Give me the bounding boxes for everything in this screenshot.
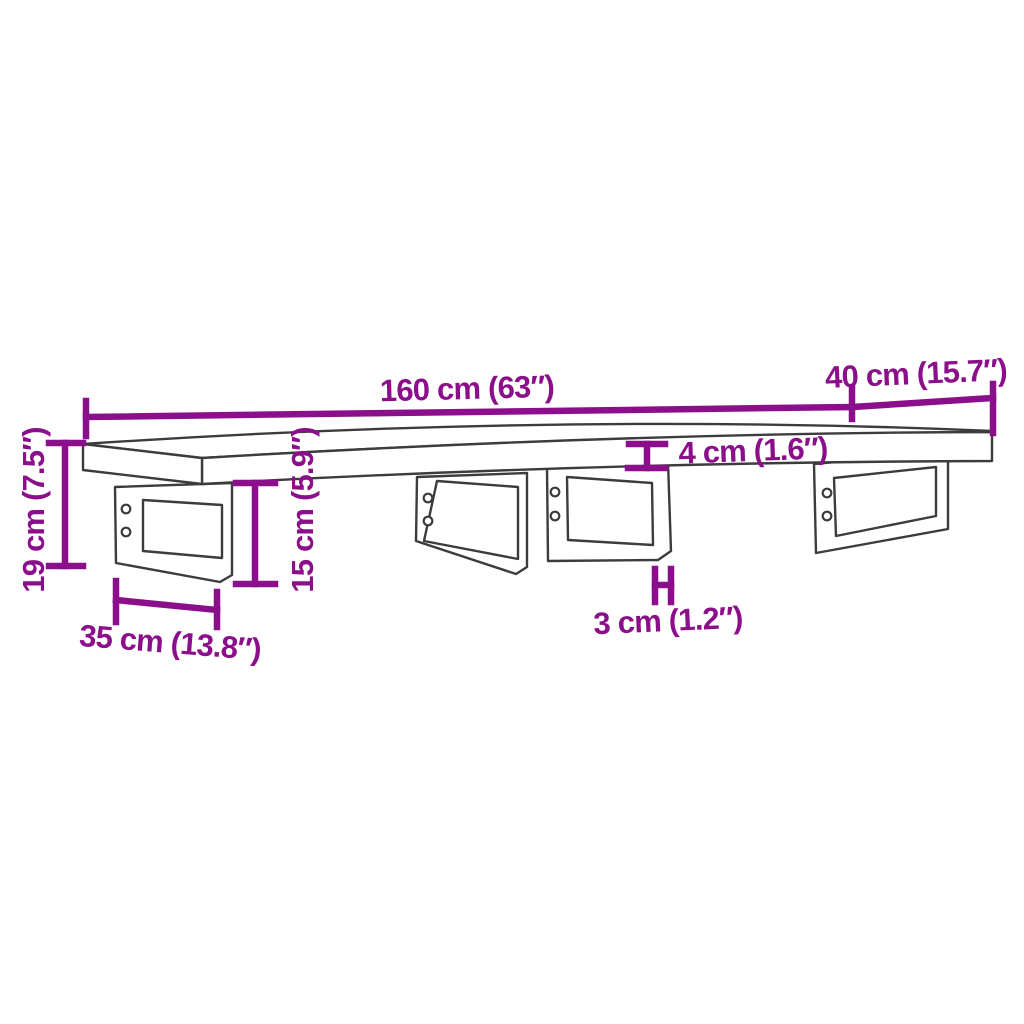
tube-width-label: 3 cm (1.2″) bbox=[593, 600, 743, 641]
bracket-middle-2-window bbox=[567, 477, 653, 545]
bracket-right bbox=[814, 451, 948, 553]
bracket-depth-label: 35 cm (13.8″) bbox=[78, 618, 262, 667]
length-dimension-line bbox=[86, 407, 852, 417]
screw-hole bbox=[122, 505, 131, 514]
overall-height-label: 19 cm (7.5″) bbox=[16, 427, 51, 593]
bracket-middle-1 bbox=[416, 473, 527, 574]
screw-hole bbox=[424, 517, 433, 526]
dimension-overall-height: 19 cm (7.5″) bbox=[16, 427, 83, 593]
length-label: 160 cm (63″) bbox=[379, 369, 554, 409]
dimension-depth: 40 cm (15.7″) bbox=[824, 352, 1007, 433]
screw-hole bbox=[122, 528, 131, 537]
thickness-label: 4 cm (1.6″) bbox=[678, 430, 828, 470]
depth-label: 40 cm (15.7″) bbox=[824, 352, 1007, 395]
bracket-height-label: 15 cm (5.9″) bbox=[285, 427, 320, 593]
bracket-left-window bbox=[143, 500, 222, 558]
bracket-depth-dimension-line bbox=[116, 600, 217, 610]
bracket-left bbox=[115, 483, 232, 582]
dimension-bracket-tube-width: 3 cm (1.2″) bbox=[593, 569, 743, 641]
bracket-middle-2 bbox=[547, 462, 671, 561]
depth-dimension-line bbox=[852, 398, 993, 407]
shelf-dimension-drawing: 160 cm (63″) 40 cm (15.7″) 4 cm (1.6″) 1… bbox=[0, 0, 1024, 1024]
screw-hole bbox=[551, 488, 560, 497]
screw-hole bbox=[424, 494, 433, 503]
screw-hole bbox=[823, 489, 832, 498]
screw-hole bbox=[823, 512, 832, 521]
dimension-diagram: 160 cm (63″) 40 cm (15.7″) 4 cm (1.6″) 1… bbox=[0, 0, 1024, 1024]
screw-hole bbox=[551, 512, 560, 521]
dimension-bracket-depth: 35 cm (13.8″) bbox=[78, 581, 262, 667]
